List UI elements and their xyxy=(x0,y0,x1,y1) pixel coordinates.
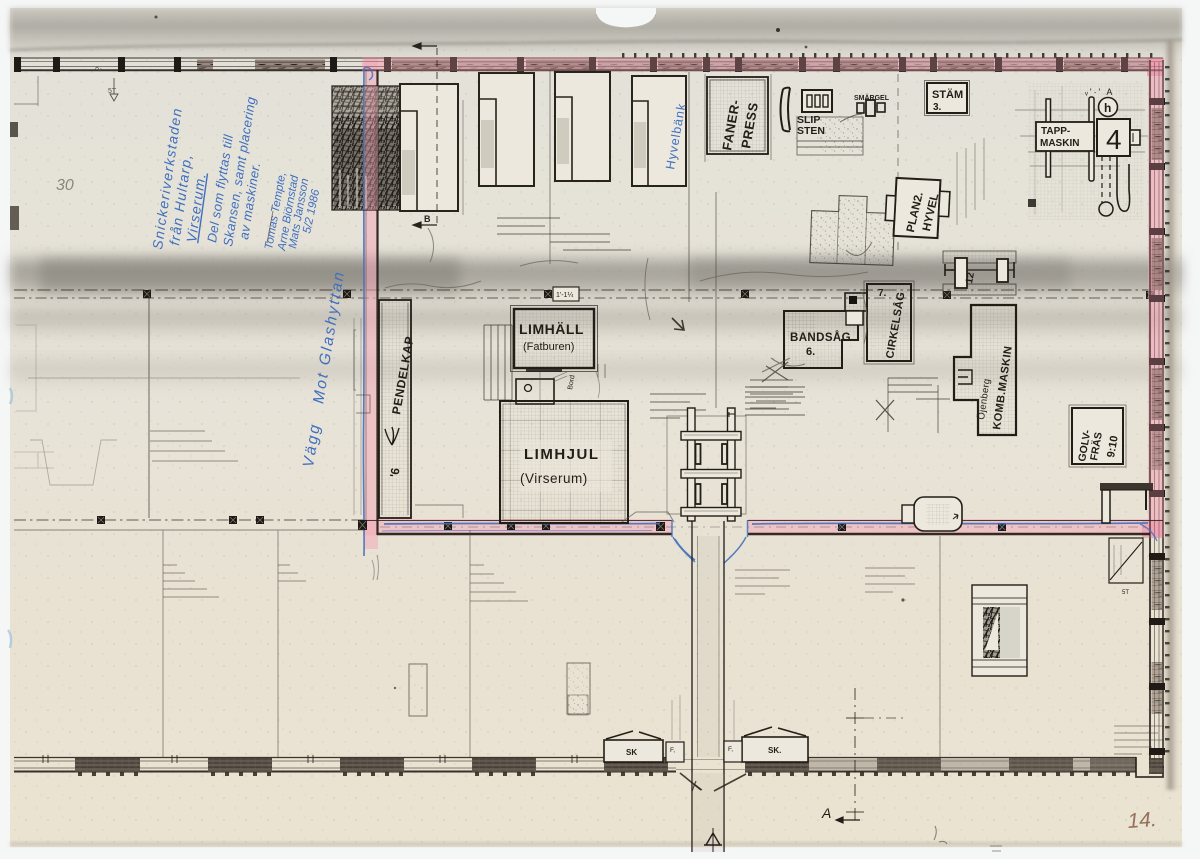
svg-text:LIMHJUL: LIMHJUL xyxy=(524,446,600,463)
svg-text:STÄM: STÄM xyxy=(932,88,963,101)
svg-text:(Fatburen): (Fatburen) xyxy=(523,341,574,353)
svg-text:F,: F, xyxy=(670,747,675,754)
svg-text:6.: 6. xyxy=(806,346,815,358)
svg-text:SK: SK xyxy=(626,748,637,757)
svg-text:3.: 3. xyxy=(933,102,942,113)
svg-text:TAPP-: TAPP- xyxy=(1041,126,1070,137)
svg-text:(Virserum): (Virserum) xyxy=(520,471,588,486)
svg-text:SK.: SK. xyxy=(768,746,781,755)
svg-text:A: A xyxy=(821,805,831,821)
svg-text:5T: 5T xyxy=(1122,590,1129,596)
svg-text:1'-1¼: 1'-1¼ xyxy=(556,292,573,299)
svg-text:F,: F, xyxy=(728,746,733,753)
svg-text:MASKIN: MASKIN xyxy=(1040,138,1079,149)
svg-text:4: 4 xyxy=(1106,124,1122,155)
svg-text:h: h xyxy=(1104,101,1111,115)
svg-text:BANDSÅG: BANDSÅG xyxy=(790,331,851,344)
svg-text:30: 30 xyxy=(56,177,74,194)
svg-text:LIMHÄLL: LIMHÄLL xyxy=(519,321,584,337)
svg-text:B: B xyxy=(424,214,431,224)
svg-text:14.: 14. xyxy=(1127,808,1158,833)
svg-text:ᵥ'·' A: ᵥ'·' A xyxy=(1084,87,1114,97)
svg-text:7.: 7. xyxy=(878,288,887,299)
